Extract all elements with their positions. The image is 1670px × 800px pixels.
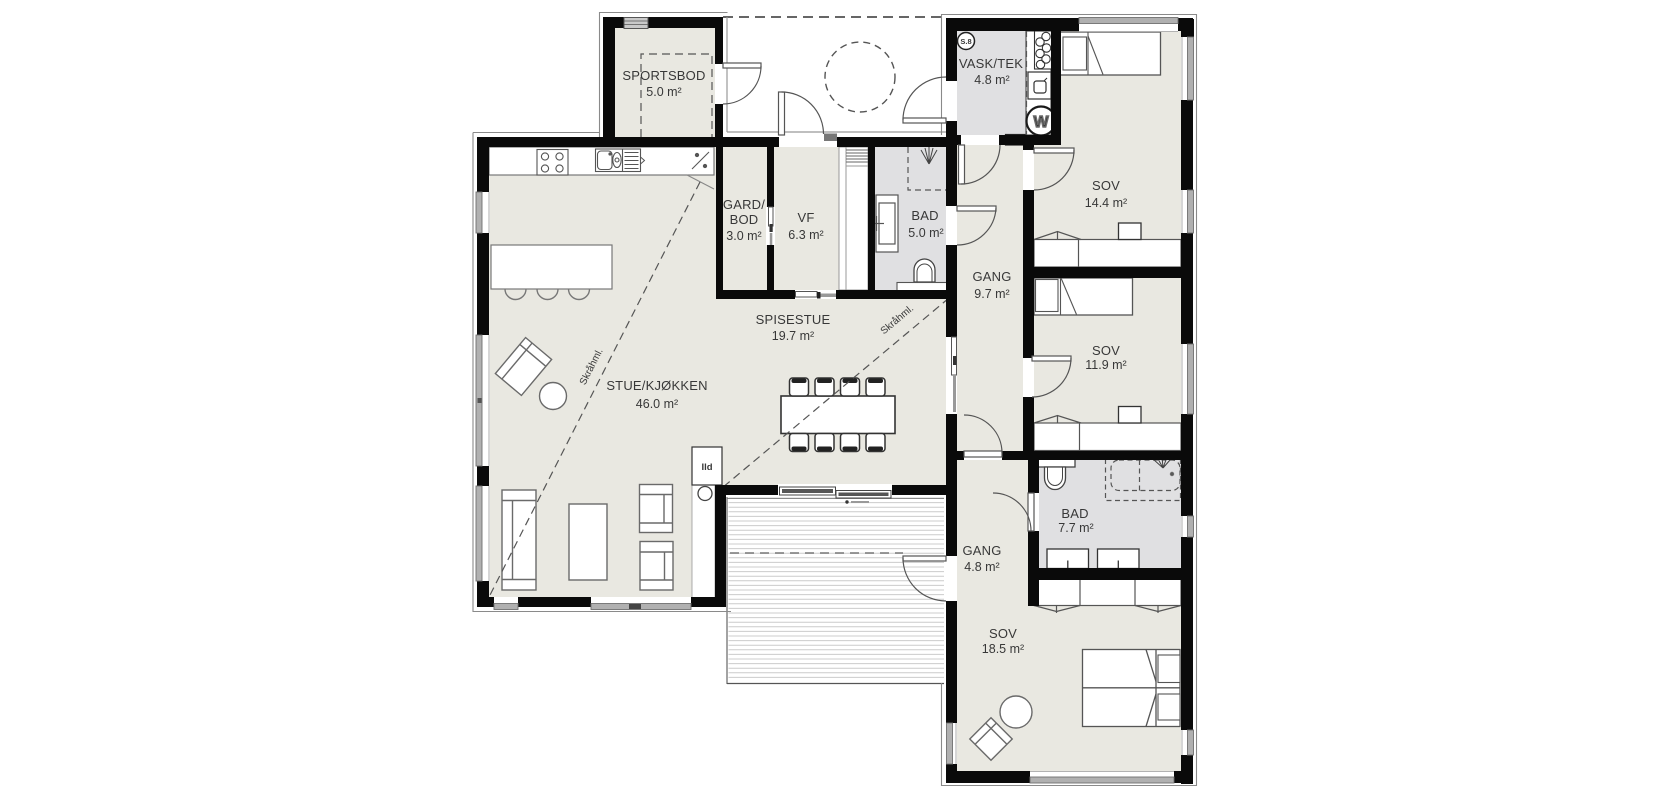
svg-text:VASK/TEK: VASK/TEK (959, 56, 1023, 71)
svg-text:SOV: SOV (1092, 343, 1120, 358)
svg-text:GANG: GANG (962, 543, 1001, 558)
svg-text:GARD/: GARD/ (723, 197, 765, 212)
svg-text:BOD: BOD (730, 212, 759, 227)
svg-text:BAD: BAD (911, 208, 938, 223)
svg-text:9.7 m²: 9.7 m² (974, 287, 1009, 301)
svg-text:VF: VF (797, 210, 814, 225)
svg-text:46.0 m²: 46.0 m² (636, 397, 678, 411)
svg-text:SPISESTUE: SPISESTUE (756, 312, 831, 327)
svg-text:11.9 m²: 11.9 m² (1085, 358, 1126, 372)
svg-text:STUE/KJØKKEN: STUE/KJØKKEN (606, 378, 707, 393)
svg-text:19.7 m²: 19.7 m² (772, 329, 814, 343)
svg-text:3.0 m²: 3.0 m² (726, 229, 761, 243)
svg-text:5.0 m²: 5.0 m² (908, 226, 943, 240)
svg-text:4.8 m²: 4.8 m² (974, 73, 1009, 87)
svg-text:6.3 m²: 6.3 m² (788, 228, 823, 242)
svg-text:SOV: SOV (1092, 178, 1120, 193)
svg-text:GANG: GANG (972, 269, 1011, 284)
svg-text:BAD: BAD (1061, 506, 1088, 521)
svg-text:4.8 m²: 4.8 m² (964, 560, 999, 574)
svg-text:S.8: S.8 (960, 37, 971, 46)
svg-text:SOV: SOV (989, 626, 1017, 641)
svg-text:7.7 m²: 7.7 m² (1058, 521, 1093, 535)
svg-text:14.4 m²: 14.4 m² (1085, 196, 1127, 210)
svg-text:5.0 m²: 5.0 m² (646, 85, 681, 99)
svg-text:W: W (1033, 114, 1049, 131)
svg-text:SPORTSBOD: SPORTSBOD (622, 68, 705, 83)
svg-text:18.5 m²: 18.5 m² (982, 642, 1024, 656)
svg-text:Ild: Ild (701, 462, 712, 473)
